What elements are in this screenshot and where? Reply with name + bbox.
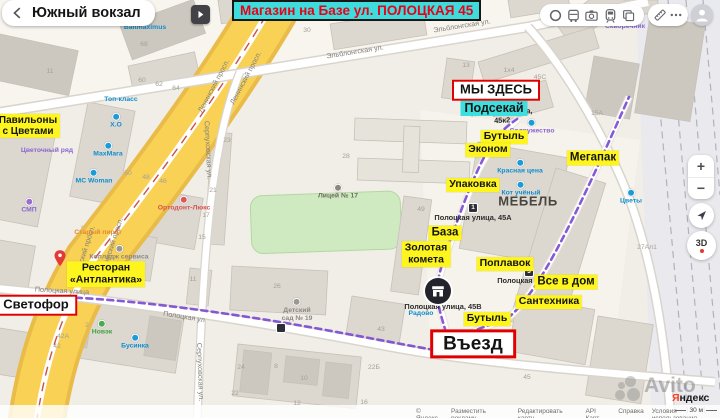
- poi-businka[interactable]: Бусинка: [121, 334, 149, 351]
- label-text: Полоцкая ул: [163, 310, 206, 325]
- label-text: 15А: [591, 110, 603, 118]
- profile-avatar[interactable]: [691, 4, 713, 26]
- label-text: Колледж сервиса: [89, 254, 148, 262]
- store-destination-marker[interactable]: [425, 278, 451, 304]
- layers-icon[interactable]: [621, 8, 636, 23]
- poi-businka-icon: [131, 334, 139, 342]
- label-text: Подсекай: [464, 101, 523, 115]
- shop-icon: [431, 284, 445, 298]
- transit-icon[interactable]: [566, 8, 581, 23]
- label-text: комета: [405, 254, 448, 266]
- label-text: 50: [124, 170, 132, 178]
- poi-ho[interactable]: Х.О: [110, 113, 122, 130]
- label-text: Эконом: [468, 144, 507, 156]
- label-text: 64: [172, 85, 180, 93]
- highlight-butyl-2: Бутыль: [464, 312, 511, 326]
- label-text: Кот учёный: [502, 190, 541, 198]
- building-number: 17: [202, 212, 210, 220]
- building-number: 23: [223, 137, 231, 145]
- poi-tsvety-icon: [627, 189, 635, 197]
- label-text: 49: [417, 206, 425, 214]
- label-text: Детский: [282, 307, 313, 315]
- more-icon[interactable]: [669, 8, 683, 22]
- label-text: Цветочный ряд: [21, 147, 73, 155]
- poi-kot-ucheny-icon: [517, 181, 525, 189]
- label-text: Ресторан: [70, 262, 142, 274]
- building-number: 68: [140, 41, 148, 49]
- building-number: 2: [85, 322, 89, 330]
- scale-label: 30 м: [689, 407, 703, 414]
- train-icon[interactable]: [603, 8, 618, 23]
- building-number: 62: [155, 81, 163, 89]
- link-api[interactable]: API Карт: [585, 408, 610, 418]
- marker-traffic-light: Светофор: [0, 295, 77, 316]
- label-text: Бутыль: [467, 313, 508, 325]
- label-text: Радово: [409, 310, 434, 318]
- watermark-dot: [615, 390, 625, 400]
- label-text: Серпуховская ул.: [202, 121, 213, 180]
- scale-indicator: 30 м: [675, 407, 717, 414]
- expand-panel-button[interactable]: [191, 5, 210, 24]
- highlight-ekonom: Эконом: [465, 143, 510, 157]
- label-text: База: [432, 227, 459, 240]
- highlight-upakovka: Упаковка: [446, 178, 499, 192]
- poi-sodruzhestvo-icon: [528, 119, 536, 127]
- label-text: 60: [138, 77, 146, 85]
- building-number: 64: [172, 85, 180, 93]
- poi-ho-icon: [112, 113, 120, 121]
- building-number: 22: [231, 390, 239, 398]
- poi-makhmaga[interactable]: МахМага: [93, 142, 122, 159]
- label-text: 24: [237, 364, 245, 372]
- label-text: Ленинский просп.: [197, 58, 232, 114]
- label-text: Ленинский просп.: [229, 50, 264, 106]
- traffic-icon[interactable]: [548, 8, 563, 23]
- person-icon: [694, 7, 710, 23]
- address-45a: Полоцкая улица, 45А: [434, 214, 511, 222]
- highlight-podsekay: Подсекай: [460, 100, 527, 116]
- highlight-pavilions: Павильоныс Цветами: [0, 114, 60, 138]
- building-number: 45: [523, 374, 531, 382]
- poi-smp-icon: [25, 198, 33, 206]
- label-text: 21: [209, 187, 217, 195]
- scale-line: [675, 410, 686, 411]
- label-text: 23: [223, 137, 231, 145]
- building-number: 43: [377, 326, 385, 334]
- marker-entrance: Въезд: [430, 329, 516, 358]
- navigation-arrow-icon: [695, 209, 708, 222]
- locate-me-button[interactable]: [689, 203, 714, 228]
- label-text: 28: [342, 153, 350, 161]
- link-help[interactable]: Справка: [618, 408, 644, 418]
- building-number: 11: [189, 276, 196, 284]
- label-text: Бусинка: [121, 343, 149, 351]
- yandex-logo-rest: ндекс: [680, 392, 710, 404]
- label-text: 43: [377, 326, 385, 334]
- street-label-leninsky: Ленинский просп.: [229, 50, 264, 106]
- watermark-dot: [618, 382, 625, 389]
- highlight-santekhnika: Сантехника: [516, 295, 582, 309]
- building-number: 30: [303, 27, 311, 35]
- compass-3d-button[interactable]: 3D: [687, 231, 716, 260]
- scale-line: [706, 410, 717, 411]
- poi-kot-ucheny[interactable]: Кот учёный: [502, 181, 541, 198]
- label-text: 62: [155, 81, 163, 89]
- poi-krasnaya-tsena[interactable]: Красная цена: [497, 159, 542, 176]
- label-text: Въезд: [443, 333, 503, 354]
- label-text: СМП: [21, 207, 36, 215]
- building-number: 22Б: [368, 364, 380, 372]
- map-toolbar: [540, 4, 644, 26]
- panorama-icon[interactable]: [584, 8, 599, 23]
- building-number: 42: [53, 343, 61, 351]
- place-title: Южный вокзал: [32, 5, 141, 21]
- label-text: Новэк: [92, 329, 112, 337]
- poi-detsky-sad-19[interactable]: Детскийсад № 19: [282, 298, 313, 322]
- watermark-dot: [627, 388, 640, 401]
- label-text: 22: [231, 390, 239, 398]
- label-text: 11: [189, 276, 196, 284]
- label-text: 42А: [57, 333, 69, 341]
- poi-tsvetochny-ryad[interactable]: Цветочный ряд: [21, 147, 73, 155]
- label-text: 8: [274, 363, 278, 371]
- building-number: 60: [138, 77, 146, 85]
- label-text: Топ-класс: [104, 96, 137, 104]
- label-text: Бутыль: [484, 131, 525, 143]
- label-text: 11: [46, 68, 53, 76]
- label-text: MC Woman: [76, 178, 113, 186]
- restaurant-pin-icon: [55, 250, 66, 271]
- label-text: Полоцкая улица, 45А: [434, 214, 511, 222]
- attribution-bar: © Яндекс Разместить рекламу Редактироват…: [0, 405, 720, 418]
- label-text: 27Ал1: [637, 244, 657, 252]
- label-text: Все в дом: [537, 276, 594, 289]
- ruler-icon[interactable]: [653, 8, 667, 22]
- yandex-logo-ya: Я: [672, 392, 680, 404]
- label-text: 15: [198, 234, 206, 242]
- poi-top-klass[interactable]: Топ-класс: [104, 96, 137, 104]
- address-polotskaya-stop: Полоцкая у: [497, 277, 539, 285]
- compass-label: 3D: [696, 238, 708, 248]
- building-number: 42А: [57, 333, 69, 341]
- building-number: 48: [142, 174, 150, 182]
- link-edit-map[interactable]: Редактировать карту: [518, 408, 578, 418]
- label-text: с Цветами: [0, 126, 57, 137]
- map-tools: [648, 4, 688, 26]
- poi-college-servisa-icon: [115, 245, 123, 253]
- annotation-banner: Магазин на Базе ул. ПОЛОЦКАЯ 45: [232, 0, 481, 21]
- label-text: 30: [303, 27, 311, 35]
- label-text: Полоцкая у: [497, 277, 539, 285]
- highlight-butyl-1: Бутыль: [481, 130, 528, 144]
- poi-college-servisa[interactable]: Колледж сервиса: [89, 245, 148, 262]
- building-number: 1х4: [504, 67, 515, 75]
- compass-needle-icon: [700, 249, 704, 253]
- poi-krasnaya-tsena-icon: [516, 159, 524, 167]
- building-number: 15: [198, 234, 206, 242]
- transit-stop-1[interactable]: 1: [468, 203, 478, 213]
- label-text: Ортодонт-Люкс: [158, 205, 210, 213]
- poi-makhmaga-icon: [104, 142, 112, 150]
- map-labels-layer: Эльблонгская ул.Эльблонгская ул.Ленински…: [0, 0, 720, 418]
- label-text: Светофор: [3, 298, 69, 313]
- label-text: Мегапак: [570, 152, 616, 165]
- label-text: 2: [85, 322, 89, 330]
- building-number: 21: [209, 187, 217, 195]
- building-number: 8: [274, 363, 278, 371]
- label-text: 13: [462, 62, 470, 70]
- street-label-serpukhovskaya: Серпуховская ул.: [195, 343, 205, 402]
- zoom-control: + −: [688, 155, 714, 199]
- label-text: 48: [142, 174, 150, 182]
- building-number: 24: [237, 364, 245, 372]
- poi-smp[interactable]: СМП: [21, 198, 36, 215]
- poi-litsey-17-icon: [334, 184, 342, 192]
- highlight-vse-v-dom: Все в дом: [534, 275, 597, 290]
- poi-novek[interactable]: Новэк: [92, 320, 112, 337]
- zoom-in-button[interactable]: +: [688, 155, 714, 178]
- street-label-leninsky: Ленинский просп.: [197, 58, 232, 114]
- back-arrow-icon[interactable]: [10, 5, 26, 21]
- label-text: Поплавок: [480, 258, 531, 270]
- label-text: 26: [273, 283, 281, 291]
- label-text: сад № 19: [282, 315, 313, 323]
- poi-ortodont[interactable]: Ортодонт-Люкс: [158, 196, 210, 213]
- marker-we-are-here: МЫ ЗДЕСЬ: [452, 80, 540, 101]
- label-text: 68: [140, 41, 148, 49]
- poi-stary-pirat[interactable]: Старый пират: [74, 229, 122, 237]
- highlight-poplavok: Поплавок: [477, 257, 534, 271]
- poi-ortodont-icon: [180, 196, 188, 204]
- label-text: 17: [202, 212, 210, 220]
- label-text: Сантехника: [519, 296, 579, 308]
- street-label-elblongskaya: Эльблонгская ул.: [326, 43, 384, 60]
- label-text: 1х4: [504, 67, 515, 75]
- watermark-dot: [625, 376, 636, 387]
- label-text: Павильоны: [0, 115, 57, 126]
- poi-detsky-sad-19-icon: [293, 298, 301, 306]
- yandex-logo[interactable]: Яндекс: [672, 392, 709, 404]
- label-text: Лицей № 17: [318, 193, 358, 201]
- label-text: Золотая: [405, 242, 448, 254]
- label-text: 46: [159, 178, 167, 186]
- highlight-megapak: Мегапак: [567, 151, 619, 166]
- label-text: 22Б: [368, 364, 380, 372]
- building-number: 11: [46, 68, 53, 76]
- building-number: 15А: [591, 110, 603, 118]
- label-text: 42: [53, 343, 61, 351]
- highlight-baza: База: [429, 226, 462, 241]
- building-number: 50: [124, 170, 132, 178]
- poi-litsey-17[interactable]: Лицей № 17: [318, 184, 358, 201]
- label-text: Серпуховская ул.: [195, 343, 205, 402]
- building-number: 49: [417, 206, 425, 214]
- label-text: 10: [300, 375, 308, 383]
- building-number: 26: [273, 283, 281, 291]
- poi-radovo[interactable]: Радово: [409, 310, 434, 318]
- highlight-restaurant: Ресторан«Антлантика»: [67, 261, 145, 287]
- label-text: Цветы: [620, 198, 642, 206]
- building-number: 13: [462, 62, 470, 70]
- zoom-out-button[interactable]: −: [688, 178, 714, 200]
- poi-tsvety[interactable]: Цветы: [620, 189, 642, 206]
- building-number: 27Ал1: [637, 244, 657, 252]
- place-search-chip[interactable]: Южный вокзал: [2, 0, 155, 26]
- attribution-links: © Яндекс Разместить рекламу Редактироват…: [416, 408, 720, 418]
- label-text: Упаковка: [449, 179, 496, 191]
- poi-novek-icon: [98, 320, 106, 328]
- yandex-map-screenshot: Эльблонгская ул.Эльблонгская ул.Ленински…: [0, 0, 720, 418]
- building-number: 46: [159, 178, 167, 186]
- building-number: 10: [300, 375, 308, 383]
- street-label-polotskaya: Полоцкая ул: [163, 310, 206, 325]
- highlight-zolotaya-kometa: Золотаякомета: [402, 241, 451, 267]
- label-text: 1: [469, 204, 477, 212]
- link-copyright[interactable]: © Яндекс: [416, 408, 443, 418]
- street-label-serpukhovskaya: Серпуховская ул.: [202, 121, 213, 180]
- link-ads[interactable]: Разместить рекламу: [451, 408, 510, 418]
- label-text: МахМага: [93, 151, 122, 159]
- label-text: Х.О: [110, 122, 122, 130]
- label-text: 45: [523, 374, 531, 382]
- play-triangle-icon: [194, 8, 207, 21]
- transit-stop[interactable]: [276, 323, 286, 333]
- poi-mc-woman-icon: [90, 169, 98, 177]
- poi-mc-woman[interactable]: MC Woman: [76, 169, 113, 186]
- label-text: Красная цена: [497, 168, 542, 176]
- label-text: Эльблонгская ул.: [326, 43, 384, 60]
- building-number: 28: [342, 153, 350, 161]
- label-text: Старый пират: [74, 229, 122, 237]
- label-text: МЫ ЗДЕСЬ: [460, 83, 532, 98]
- label-text: «Антлантика»: [70, 274, 142, 286]
